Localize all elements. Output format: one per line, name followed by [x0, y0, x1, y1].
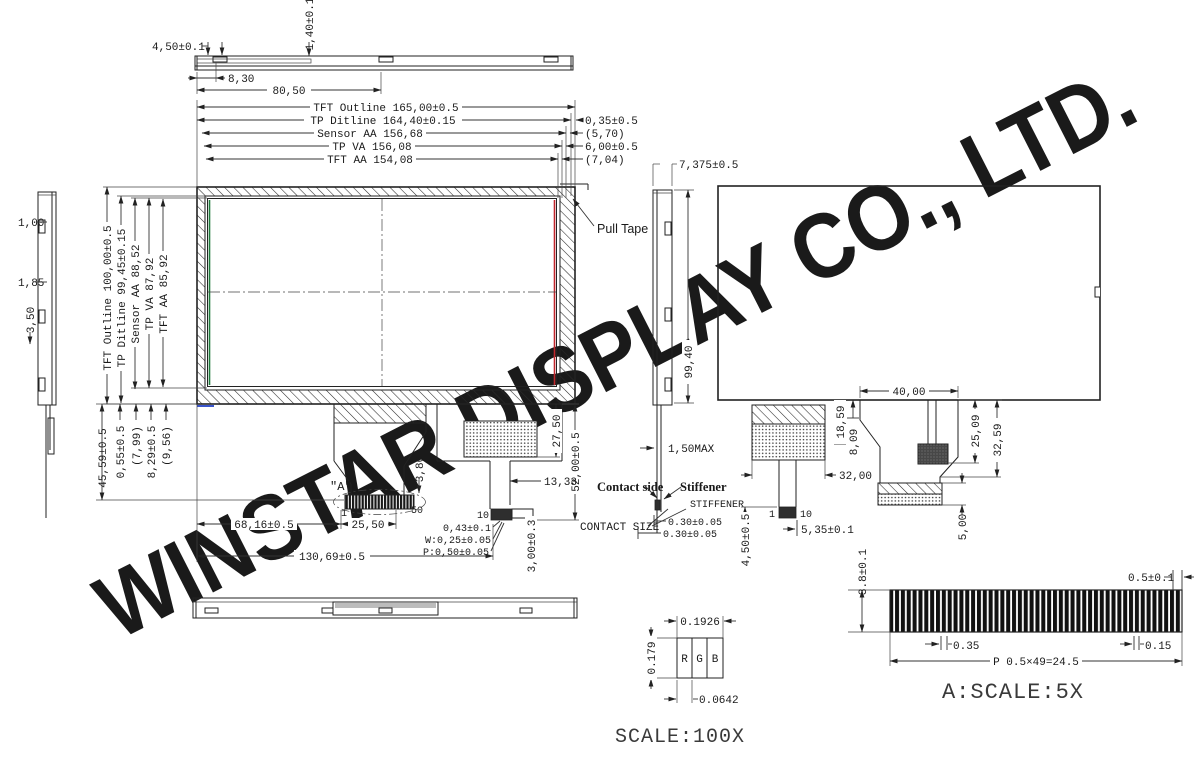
svg-text:27,50: 27,50 — [552, 414, 564, 447]
dim-1-50max: 1,50MAX — [668, 444, 715, 456]
mount-tab — [379, 57, 393, 62]
dim-7-99: (7,99) — [132, 426, 144, 466]
svg-text:TFT AA 85,92: TFT AA 85,92 — [159, 254, 171, 333]
bottom-profile-view — [193, 598, 577, 618]
stiffener-label: Stiffener — [680, 480, 727, 494]
dim-sensor-aa-v: Sensor AA 88,52 — [129, 241, 143, 347]
dim-1-85: 1,85 — [18, 278, 44, 290]
svg-text:3,00±0.3: 3,00±0.3 — [527, 520, 539, 573]
svg-text:TP Ditline 99,45±0.15: TP Ditline 99,45±0.15 — [117, 229, 129, 368]
pull-tape-callout: Pull Tape — [573, 199, 648, 236]
contact-10pin — [491, 509, 512, 520]
pull-tape-label: Pull Tape — [597, 222, 648, 236]
dim-0-5: 0.5±0.1 — [1128, 573, 1175, 585]
dim-3-00: 3,00±0.3 — [525, 516, 539, 576]
svg-text:99,40: 99,40 — [684, 345, 696, 378]
dim-tft-outline-h: TFT Outline 165,00±0.5 — [310, 101, 462, 115]
svg-text:TP VA 87,92: TP VA 87,92 — [145, 258, 157, 331]
left-profile-view: 1,00 1,85 3,50 — [18, 192, 56, 518]
back-pin-10: 10 — [800, 510, 812, 521]
dim-13-33: 13,33 — [544, 477, 577, 489]
svg-text:0,55±0.5: 0,55±0.5 — [116, 426, 128, 479]
dim-tft-aa-h: TFT AA 154,08 — [324, 153, 416, 167]
svg-text:3,50: 3,50 — [26, 307, 38, 333]
dim-3-80: 3,80 — [415, 456, 427, 482]
contact-strip-detail — [890, 590, 1182, 632]
svg-text:(7,99): (7,99) — [132, 426, 144, 466]
dim-4-50-back: 4,50±0.5 — [739, 512, 753, 568]
offset-0-35: 0,35±0.5 — [585, 116, 638, 128]
dim-pitch: P 0.5×49=24.5 — [990, 655, 1082, 669]
dim-w-0-25: W:0,25±0.05 — [425, 536, 491, 547]
dim-0-30-bottom: 0.30±0.05 — [663, 530, 717, 541]
dim-45-59: 45,59±0.5 — [98, 428, 110, 487]
svg-text:40,00: 40,00 — [892, 387, 925, 399]
detail-a-ref: "A" — [330, 480, 352, 494]
back-stiffener — [918, 444, 948, 464]
contact-strip-50pin — [345, 495, 414, 509]
subpixel-g: G — [696, 654, 703, 666]
dim-tft-aa-v: TFT AA 85,92 — [157, 251, 171, 337]
offset-5-70: (5,70) — [585, 129, 625, 141]
detail-a-scale-label: A:SCALE:5X — [942, 680, 1084, 705]
subpixel-r: R — [681, 654, 688, 666]
svg-text:Sensor AA 156,68: Sensor AA 156,68 — [317, 129, 423, 141]
svg-text:25,50: 25,50 — [351, 520, 384, 532]
dim-68-16: 68,16±0.5 — [231, 518, 297, 532]
dim-3-8: 3.8±0.1 — [858, 549, 870, 596]
dim-8-29: 8,29±0.5 — [147, 426, 159, 479]
svg-text:25,09: 25,09 — [971, 414, 983, 447]
svg-text:32,59: 32,59 — [993, 423, 1005, 456]
dim-80-50: 80,50 — [267, 84, 311, 98]
dim-40-00: 40,00 — [889, 385, 929, 399]
svg-text:8,29±0.5: 8,29±0.5 — [147, 426, 159, 479]
dim-tft-outline-v: TFT Outline 100,00±0.5 — [101, 222, 115, 374]
mount-tab — [544, 57, 558, 62]
dim-1-40: 1,40±0.1 — [305, 0, 317, 50]
dim-0-55: 0,55±0.5 — [116, 426, 128, 479]
contact-size-label: CONTACT SIZE — [580, 522, 660, 534]
dim-25-50: 25,50 — [348, 518, 388, 532]
svg-text:8,09: 8,09 — [849, 429, 861, 455]
dim-tp-va-v: TP VA 87,92 — [143, 254, 157, 334]
contact-annotations: Contact side Stiffener STIFFENER CONTACT… — [580, 480, 744, 541]
mechanical-drawing: WINSTAR DISPLAY CO., LTD. 4,50±0.1 1,40±… — [0, 0, 1200, 757]
stiffener-caps-label: STIFFENER — [690, 500, 744, 511]
svg-text:TP VA 156,08: TP VA 156,08 — [332, 142, 411, 154]
dim-tp-va-h: TP VA 156,08 — [329, 140, 415, 154]
detail-a-view: 3.8±0.1 0.5±0.1 0.35 0.15 P 0.5×49=24.5 … — [848, 549, 1194, 705]
svg-text:TP Ditline 164,40±0.15: TP Ditline 164,40±0.15 — [310, 116, 455, 128]
dim-32-00: 32,00 — [839, 471, 872, 483]
contact-side-label: Contact side — [597, 480, 664, 494]
svg-text:5,00: 5,00 — [958, 514, 970, 540]
dim-5-00: 5,00 — [958, 514, 970, 540]
offset-6-00: 6,00±0.5 — [585, 142, 638, 154]
svg-text:3.8±0.1: 3.8±0.1 — [858, 549, 870, 596]
offset-7-04: (7,04) — [585, 155, 625, 167]
top-profile-view: 4,50±0.1 1,40±0.1 8,30 80,50 — [152, 0, 573, 98]
dim-0-43: 0,43±0.1 — [443, 524, 491, 535]
dim-pixel-height: 0.179 — [645, 636, 659, 680]
dim-tp-outline-h: TP Ditline 164,40±0.15 — [304, 114, 462, 128]
front-horizontal-dims: TFT Outline 165,00±0.5 TP Ditline 164,40… — [197, 100, 638, 198]
dim-1-00: 1,00 — [18, 218, 44, 230]
svg-text:130,69±0.5: 130,69±0.5 — [299, 552, 365, 564]
dim-pixel-width: 0.1926 — [680, 617, 720, 629]
svg-text:80,50: 80,50 — [272, 86, 305, 98]
stiffener-area — [464, 421, 537, 457]
dim-0-35: 0.35 — [953, 641, 979, 653]
dim-sensor-aa-h: Sensor AA 156,68 — [314, 127, 426, 141]
dim-27-50: 27,50 — [550, 409, 564, 453]
dim-0-30-top: 0.30±0.05 — [668, 518, 722, 529]
dim-9-56: (9,56) — [162, 426, 174, 466]
dim-99-40: 99,40 — [682, 340, 696, 384]
dim-130-69: 130,69±0.5 — [294, 550, 370, 564]
dim-subpixel-width: 0.0642 — [699, 695, 739, 707]
svg-text:45,59±0.5: 45,59±0.5 — [98, 428, 110, 487]
dim-32-59: 32,59 — [991, 418, 1005, 462]
svg-text:0.179: 0.179 — [647, 641, 659, 674]
drawing-sheet: WINSTAR DISPLAY CO., LTD. 4,50±0.1 1,40±… — [0, 0, 1200, 757]
dim-18-59: 18,59 — [834, 400, 848, 444]
pin-50-label: 50 — [411, 506, 423, 517]
svg-text:68,16±0.5: 68,16±0.5 — [234, 520, 293, 532]
dim-8-30: 8,30 — [228, 74, 254, 86]
back-pin-1: 1 — [769, 510, 775, 521]
svg-text:(9,56): (9,56) — [162, 426, 174, 466]
svg-text:1,40±0.1: 1,40±0.1 — [305, 0, 317, 50]
mount-tab — [213, 57, 227, 62]
pixel-scale-label: SCALE:100X — [615, 726, 745, 749]
pin-10-label: 10 — [477, 511, 489, 522]
front-vertical-dims: TFT Outline 100,00±0.5 TP Ditline 99,45±… — [101, 187, 207, 404]
svg-text:Sensor AA 88,52: Sensor AA 88,52 — [131, 244, 143, 343]
pin-1-label: 1 — [341, 509, 347, 520]
svg-text:TFT AA 154,08: TFT AA 154,08 — [327, 155, 413, 167]
back-contact-10pin — [779, 507, 796, 518]
dim-tp-outline-v: TP Ditline 99,45±0.15 — [115, 225, 129, 371]
dim-7-375: 7,375±0.5 — [679, 160, 738, 172]
dim-3-50: 3,50 — [26, 307, 38, 333]
dim-4-50: 4,50±0.1 — [152, 42, 205, 54]
dim-5-35: 5,35±0.1 — [801, 525, 854, 537]
subpixel-b: B — [712, 654, 719, 666]
svg-text:TFT Outline 165,00±0.5: TFT Outline 165,00±0.5 — [313, 103, 458, 115]
svg-text:P 0.5×49=24.5: P 0.5×49=24.5 — [993, 657, 1079, 669]
dim-25-09: 25,09 — [969, 409, 983, 453]
pixel-detail: R G B 0.1926 0.179 0.0642 SCALE:100X — [615, 616, 745, 749]
dim-p-0-50: P:0,50±0.05 — [423, 548, 489, 559]
svg-text:TFT Outline 100,00±0.5: TFT Outline 100,00±0.5 — [103, 225, 115, 370]
dim-0-15: 0.15 — [1145, 641, 1171, 653]
svg-text:4,50±0.5: 4,50±0.5 — [741, 514, 753, 567]
svg-text:18,59: 18,59 — [836, 405, 848, 438]
svg-text:3,80: 3,80 — [415, 456, 427, 482]
dim-8-09: 8,09 — [849, 429, 861, 455]
